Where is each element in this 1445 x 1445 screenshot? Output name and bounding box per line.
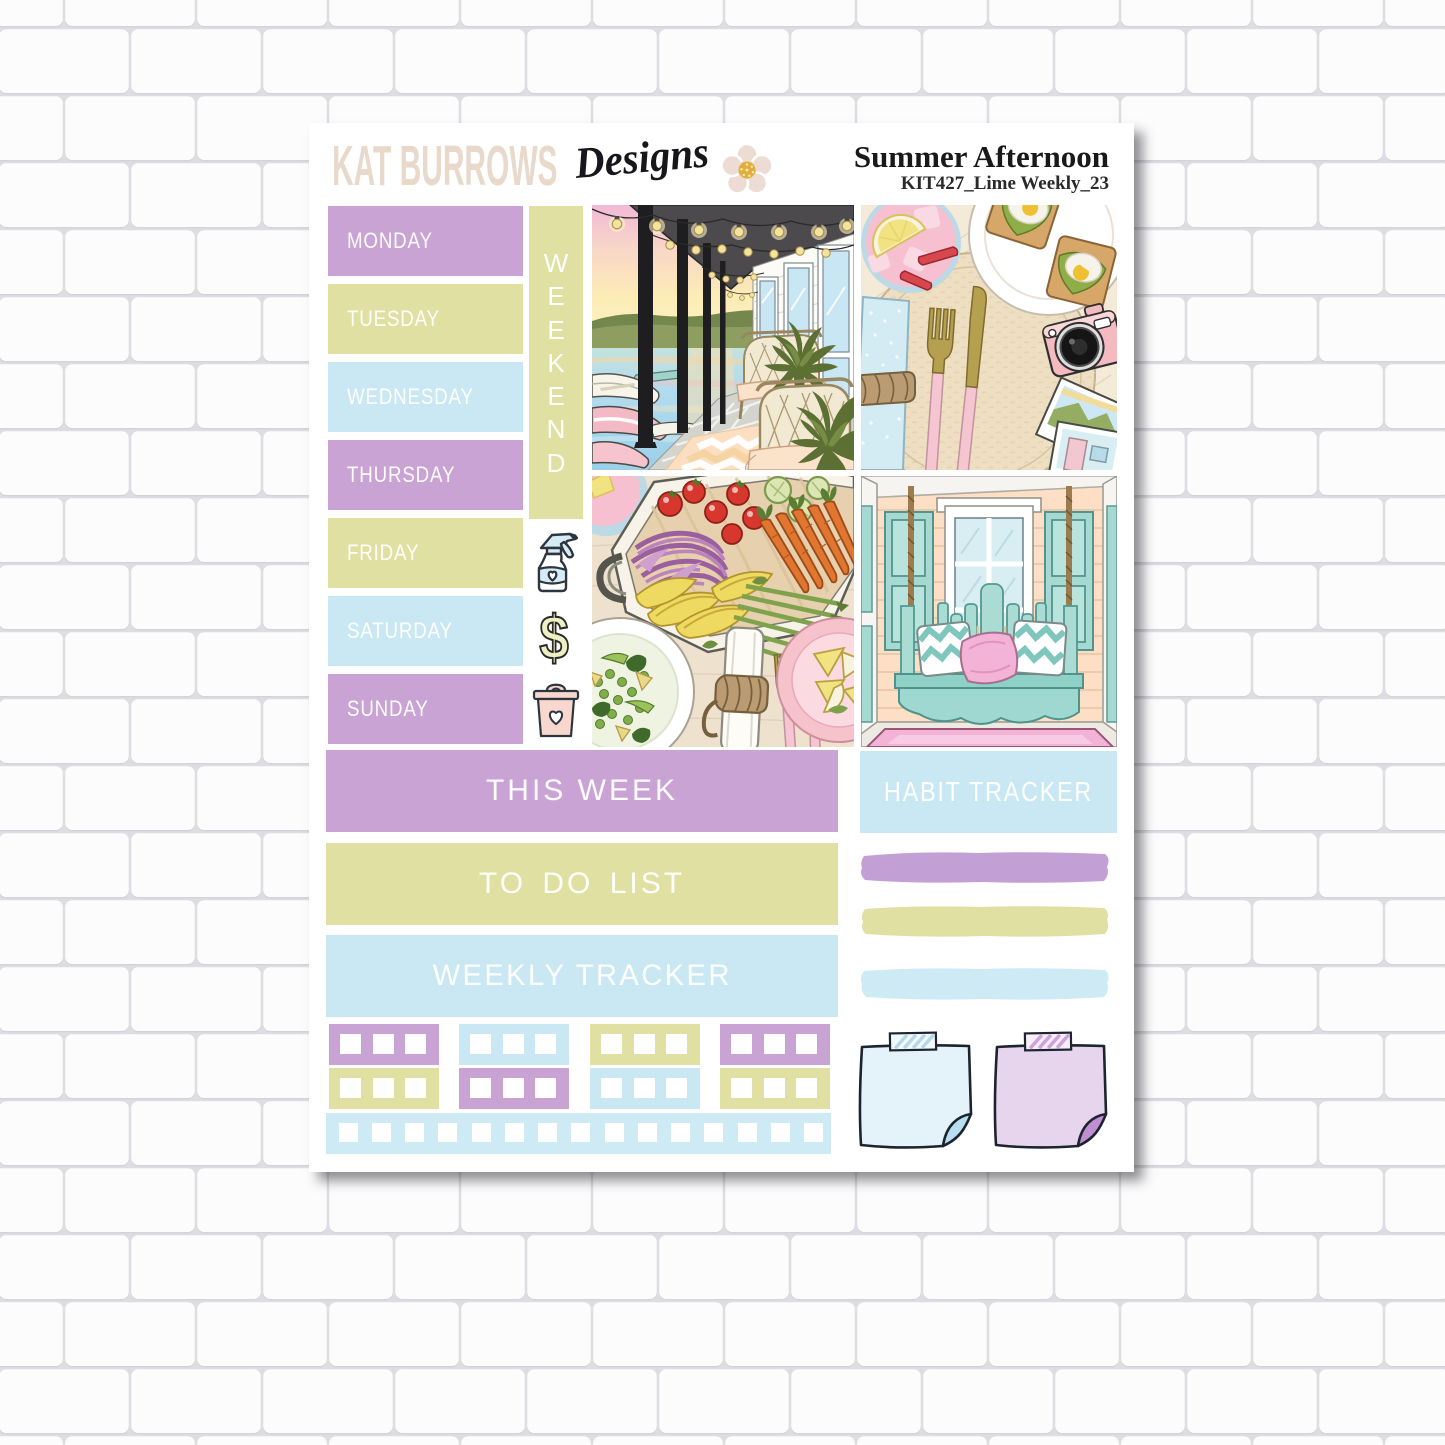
svg-text:$: $	[539, 604, 568, 670]
